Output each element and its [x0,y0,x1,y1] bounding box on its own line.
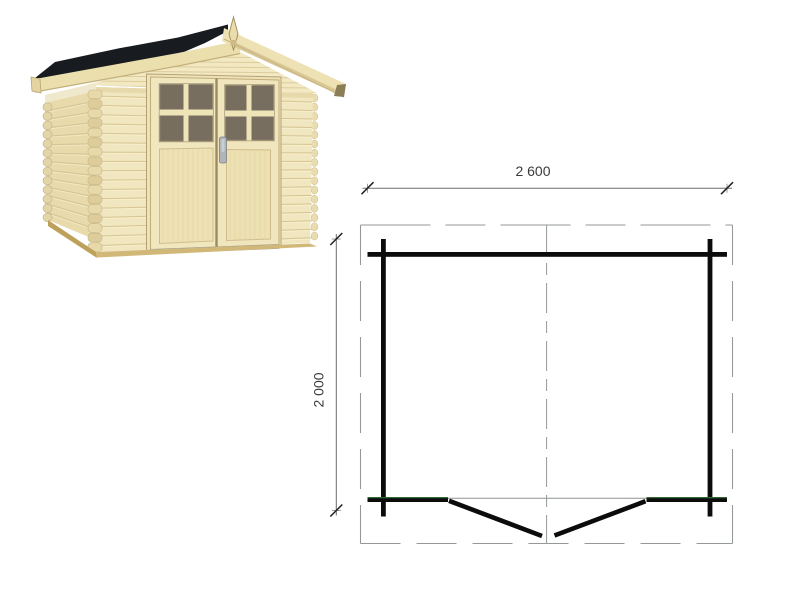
svg-text:2 600: 2 600 [515,163,550,179]
svg-text:2 000: 2 000 [311,372,327,407]
